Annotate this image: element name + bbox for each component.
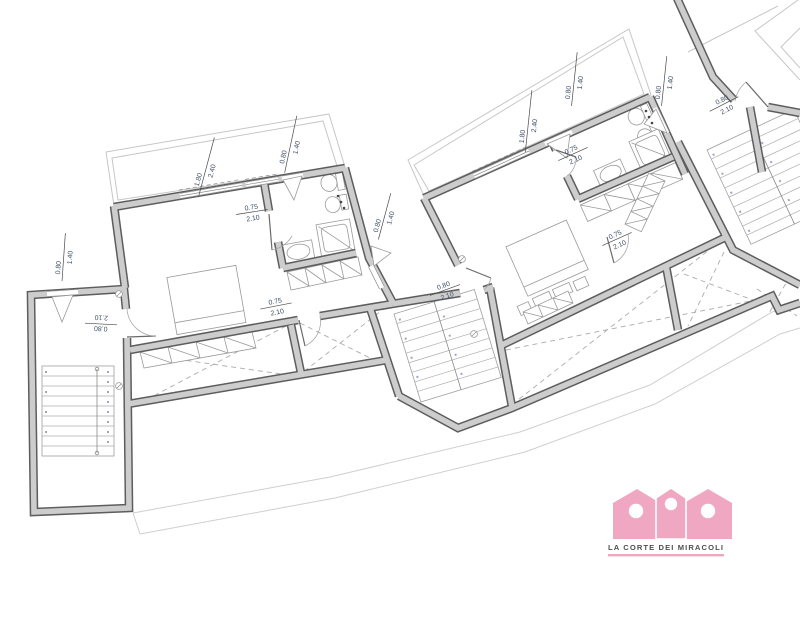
dimension-value: 0.80 [94, 324, 108, 332]
dimension-value: 2.10 [270, 308, 285, 317]
bath-window-unit1 [369, 246, 391, 289]
dimension-value: 2.40 [207, 164, 217, 179]
logo: LA CORTE DEI MIRACOLI [608, 488, 732, 556]
dimension-label: 0.80 2.10 [85, 313, 118, 333]
door-middle-stair [466, 268, 491, 290]
window-triangle-icon [52, 295, 73, 322]
stair-left-wing [42, 366, 114, 456]
door-wing-entrance [127, 309, 156, 337]
walls-light [31, 0, 800, 512]
dimension-label: 0.80 1.40 [277, 114, 307, 174]
dimension-value: 0.80 [55, 261, 63, 275]
dimension-value: 0.80 [373, 218, 383, 233]
dimension-value: 1.40 [667, 76, 675, 90]
nightstand [573, 276, 589, 290]
dimension-value: 2.40 [531, 119, 539, 133]
window-triangle-icon [371, 246, 391, 266]
dimension-value: 2.10 [720, 104, 735, 116]
dimension-label: 0.80 1.40 [55, 233, 76, 282]
dimension-label: 0.80 1.40 [654, 55, 677, 107]
door-attic-unit1 [299, 316, 321, 346]
logo-wordmark: LA CORTE DEI MIRACOLI [608, 543, 724, 552]
bidet [324, 194, 349, 214]
french-window-wing [47, 289, 78, 322]
dimension-value: 2.10 [94, 313, 108, 321]
stair-middle [394, 289, 501, 402]
dimension-value: 2.10 [612, 239, 627, 251]
window-triangle-icon [283, 176, 302, 200]
dimension-label: 0.75 2.10 [599, 226, 636, 255]
dimension-value: 0.80 [655, 85, 663, 99]
dimension-value: 1.80 [194, 172, 204, 187]
dimension-value: 1.40 [577, 76, 585, 90]
bed [167, 265, 246, 334]
logo-underline [608, 554, 724, 556]
door-right-stair [735, 82, 768, 107]
dimension-label: 0.80 2.10 [706, 90, 743, 121]
dimension-value: 0.80 [565, 85, 573, 99]
dimension-label: 0.80 1.40 [564, 51, 588, 107]
dimension-value: 0.80 [279, 150, 289, 165]
dimension-value: 2.10 [246, 214, 261, 223]
floor-plan-canvas: 1.80 2.40 0.80 1.40 0.75 2.10 0.75 2.10 … [0, 0, 800, 627]
dimension-value: 1.40 [386, 211, 396, 226]
dimension-label: 0.75 2.10 [259, 296, 294, 320]
dimension-label: 0.80 1.40 [371, 191, 401, 242]
floor-plan-page: 1.80 2.40 0.80 1.40 0.75 2.10 0.75 2.10 … [0, 0, 800, 627]
dimension-value: 1.80 [519, 129, 527, 143]
french-window-unit1 [282, 173, 303, 201]
dimension-value: 1.40 [292, 140, 302, 155]
dimension-value: 2.10 [568, 154, 583, 166]
logo-houses-icon [613, 488, 732, 539]
dimension-value: 1.40 [67, 250, 75, 264]
window-1-80-unit2 [472, 147, 530, 179]
